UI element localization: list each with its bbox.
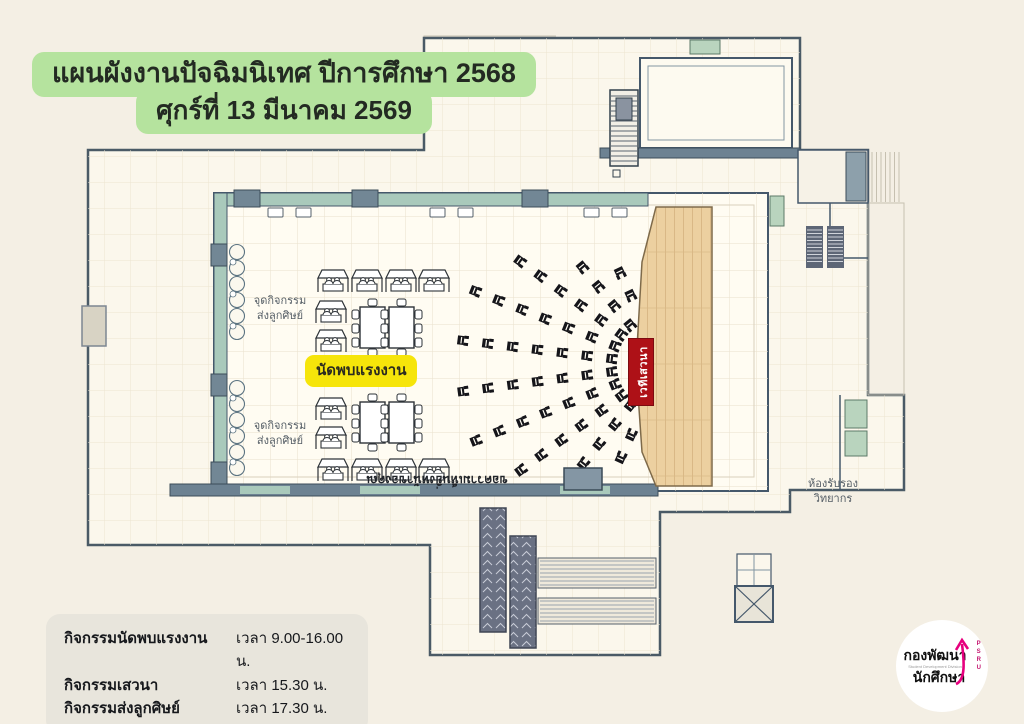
schedule-box: กิจกรรมนัดพบแรงงาน เวลา 9.00-16.00 น. กิ… — [46, 614, 368, 724]
hall-note: ขอความเห็นยิ่งหน้าของคุณ — [356, 470, 518, 489]
side-block — [82, 306, 106, 346]
stairs-icon — [610, 90, 638, 177]
farewell-point-label-2: จุดกิจกรรม ส่งลูกศิษย์ — [243, 419, 317, 450]
job-fair-label: นัดพบแรงงาน — [305, 355, 417, 387]
farewell-point-label-1: จุดกิจกรรม ส่งลูกศิษย์ — [243, 294, 317, 325]
stage-label: เวทีเสวนา — [628, 338, 654, 406]
speaker-room-label: ห้องรับรอง วิทยากร — [795, 477, 871, 508]
pink-arrow-icon — [952, 636, 978, 688]
schedule-row: กิจกรรมเสวนา เวลา 15.30 น. — [64, 674, 350, 697]
event-floorplan-poster: แผนผังงานปัจฉิมนิเทศ ปีการศึกษา 2568 ศุก… — [0, 0, 1024, 724]
schedule-row: กิจกรรมนัดพบแรงงาน เวลา 9.00-16.00 น. — [64, 627, 350, 674]
screen-table — [564, 468, 602, 490]
schedule-row: กิจกรรมส่งลูกศิษย์ เวลา 17.30 น. — [64, 697, 350, 720]
logo-acronym: PSRU — [977, 640, 981, 672]
title-line2: ศุกร์ที่ 13 มีนาคม 2569 — [136, 90, 432, 134]
poster-title: แผนผังงานปัจฉิมนิเทศ ปีการศึกษา 2568 ศุก… — [28, 52, 540, 134]
elevator-icon — [735, 554, 773, 622]
organization-logo: กองพัฒนา Student Development Division นั… — [896, 620, 988, 712]
